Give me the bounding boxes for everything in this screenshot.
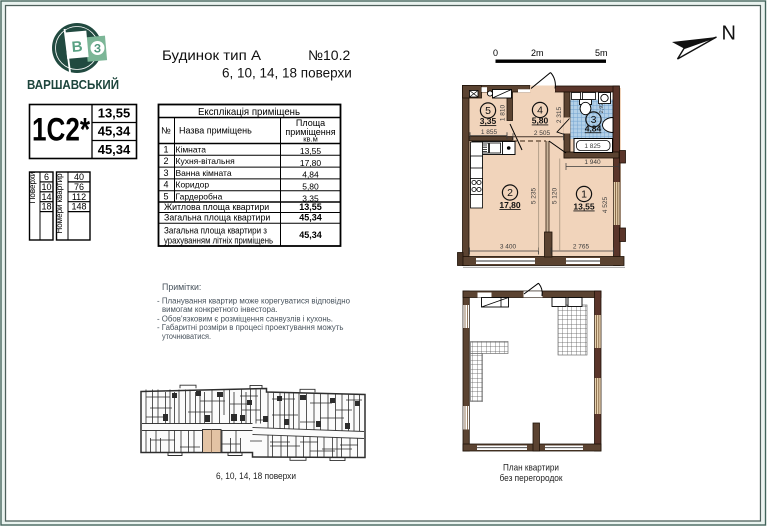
svg-text:1: 1 (163, 144, 168, 154)
svg-text:1 825: 1 825 (584, 143, 601, 150)
svg-text:17,80: 17,80 (499, 200, 521, 210)
svg-text:6, 10, 14, 18 поверхи: 6, 10, 14, 18 поверхи (222, 66, 352, 81)
svg-text:5m: 5m (595, 48, 608, 58)
svg-text:Кухня-вітальня: Кухня-вітальня (176, 156, 236, 166)
svg-text:Ванна кімната: Ванна кімната (176, 168, 232, 178)
svg-text:1С2*: 1С2* (32, 112, 90, 148)
svg-text:В: В (71, 38, 83, 56)
svg-text:уточнюватися.: уточнюватися. (162, 331, 211, 341)
svg-text:2 505: 2 505 (534, 130, 551, 137)
svg-text:Гардеробна: Гардеробна (176, 192, 223, 202)
svg-text:5,80: 5,80 (532, 116, 549, 126)
svg-text:1 940: 1 940 (584, 159, 601, 166)
svg-text:Експлікація приміщень: Експлікація приміщень (198, 106, 300, 118)
svg-text:45,34: 45,34 (98, 142, 131, 157)
svg-text:18: 18 (41, 202, 51, 212)
svg-text:Примітки:: Примітки: (162, 282, 201, 292)
svg-text:Коридор: Коридор (176, 180, 210, 190)
svg-text:148: 148 (71, 202, 86, 212)
svg-text:45,34: 45,34 (299, 213, 322, 223)
svg-text:2,92: 2,92 (599, 103, 605, 114)
svg-text:76: 76 (74, 182, 84, 192)
svg-text:0: 0 (493, 48, 498, 58)
svg-text:4,84: 4,84 (585, 123, 602, 133)
svg-text:14: 14 (41, 192, 51, 202)
svg-text:План квартири: План квартири (503, 463, 559, 473)
svg-text:ВАРШАВСЬКИЙ: ВАРШАВСЬКИЙ (27, 77, 119, 92)
svg-text:13,55: 13,55 (98, 106, 131, 121)
svg-text:Загальна площа квартири з: Загальна площа квартири з (164, 226, 267, 236)
svg-text:3,35: 3,35 (480, 116, 497, 126)
svg-text:40: 40 (74, 172, 84, 182)
svg-text:2 315: 2 315 (556, 106, 563, 123)
svg-text:45,34: 45,34 (98, 124, 131, 139)
svg-text:кв.м: кв.м (303, 135, 318, 144)
svg-text:2: 2 (163, 156, 168, 166)
svg-text:N: N (722, 23, 736, 45)
svg-text:5 235: 5 235 (531, 187, 538, 204)
svg-text:2m: 2m (531, 48, 544, 58)
svg-text:без перегородок: без перегородок (500, 473, 564, 483)
svg-text:112: 112 (72, 192, 86, 202)
svg-text:1 855: 1 855 (481, 129, 498, 136)
svg-text:6: 6 (44, 172, 49, 182)
svg-text:3: 3 (163, 168, 168, 178)
svg-text:Назва приміщень: Назва приміщень (179, 126, 252, 136)
svg-text:4 525: 4 525 (602, 196, 609, 213)
svg-text:13,55: 13,55 (300, 146, 322, 156)
svg-text:45,34: 45,34 (299, 230, 322, 240)
svg-text:Загальна площа квартири: Загальна площа квартири (164, 213, 270, 223)
svg-text:Житлова площа квартири: Житлова площа квартири (164, 202, 269, 212)
svg-text:5: 5 (163, 192, 168, 202)
svg-text:13,55: 13,55 (573, 202, 595, 212)
svg-text:5 120: 5 120 (552, 187, 559, 204)
svg-text:№10.2: №10.2 (308, 47, 350, 63)
svg-text:№: № (161, 126, 171, 136)
svg-text:Будинок тип А: Будинок тип А (162, 47, 262, 63)
svg-text:6, 10, 14, 18 поверхи: 6, 10, 14, 18 поверхи (216, 471, 296, 482)
svg-text:2 765: 2 765 (573, 244, 590, 251)
svg-text:Номери квартир: Номери квартир (55, 173, 64, 234)
svg-text:10: 10 (41, 182, 51, 192)
svg-text:17,80: 17,80 (300, 158, 322, 168)
svg-text:1: 1 (581, 189, 587, 201)
svg-text:2: 2 (507, 187, 513, 199)
svg-text:13,55: 13,55 (299, 202, 322, 212)
svg-text:4: 4 (163, 180, 168, 190)
svg-text:Поверхи: Поверхи (28, 172, 37, 204)
svg-text:4,84: 4,84 (302, 170, 319, 180)
svg-text:урахуванням літніх приміщень: урахуванням літніх приміщень (164, 236, 273, 246)
svg-text:Кімната: Кімната (176, 144, 207, 154)
svg-text:5,80: 5,80 (302, 182, 319, 192)
svg-text:1 810: 1 810 (500, 104, 507, 121)
svg-text:З: З (94, 43, 101, 55)
svg-text:3 400: 3 400 (500, 244, 517, 251)
